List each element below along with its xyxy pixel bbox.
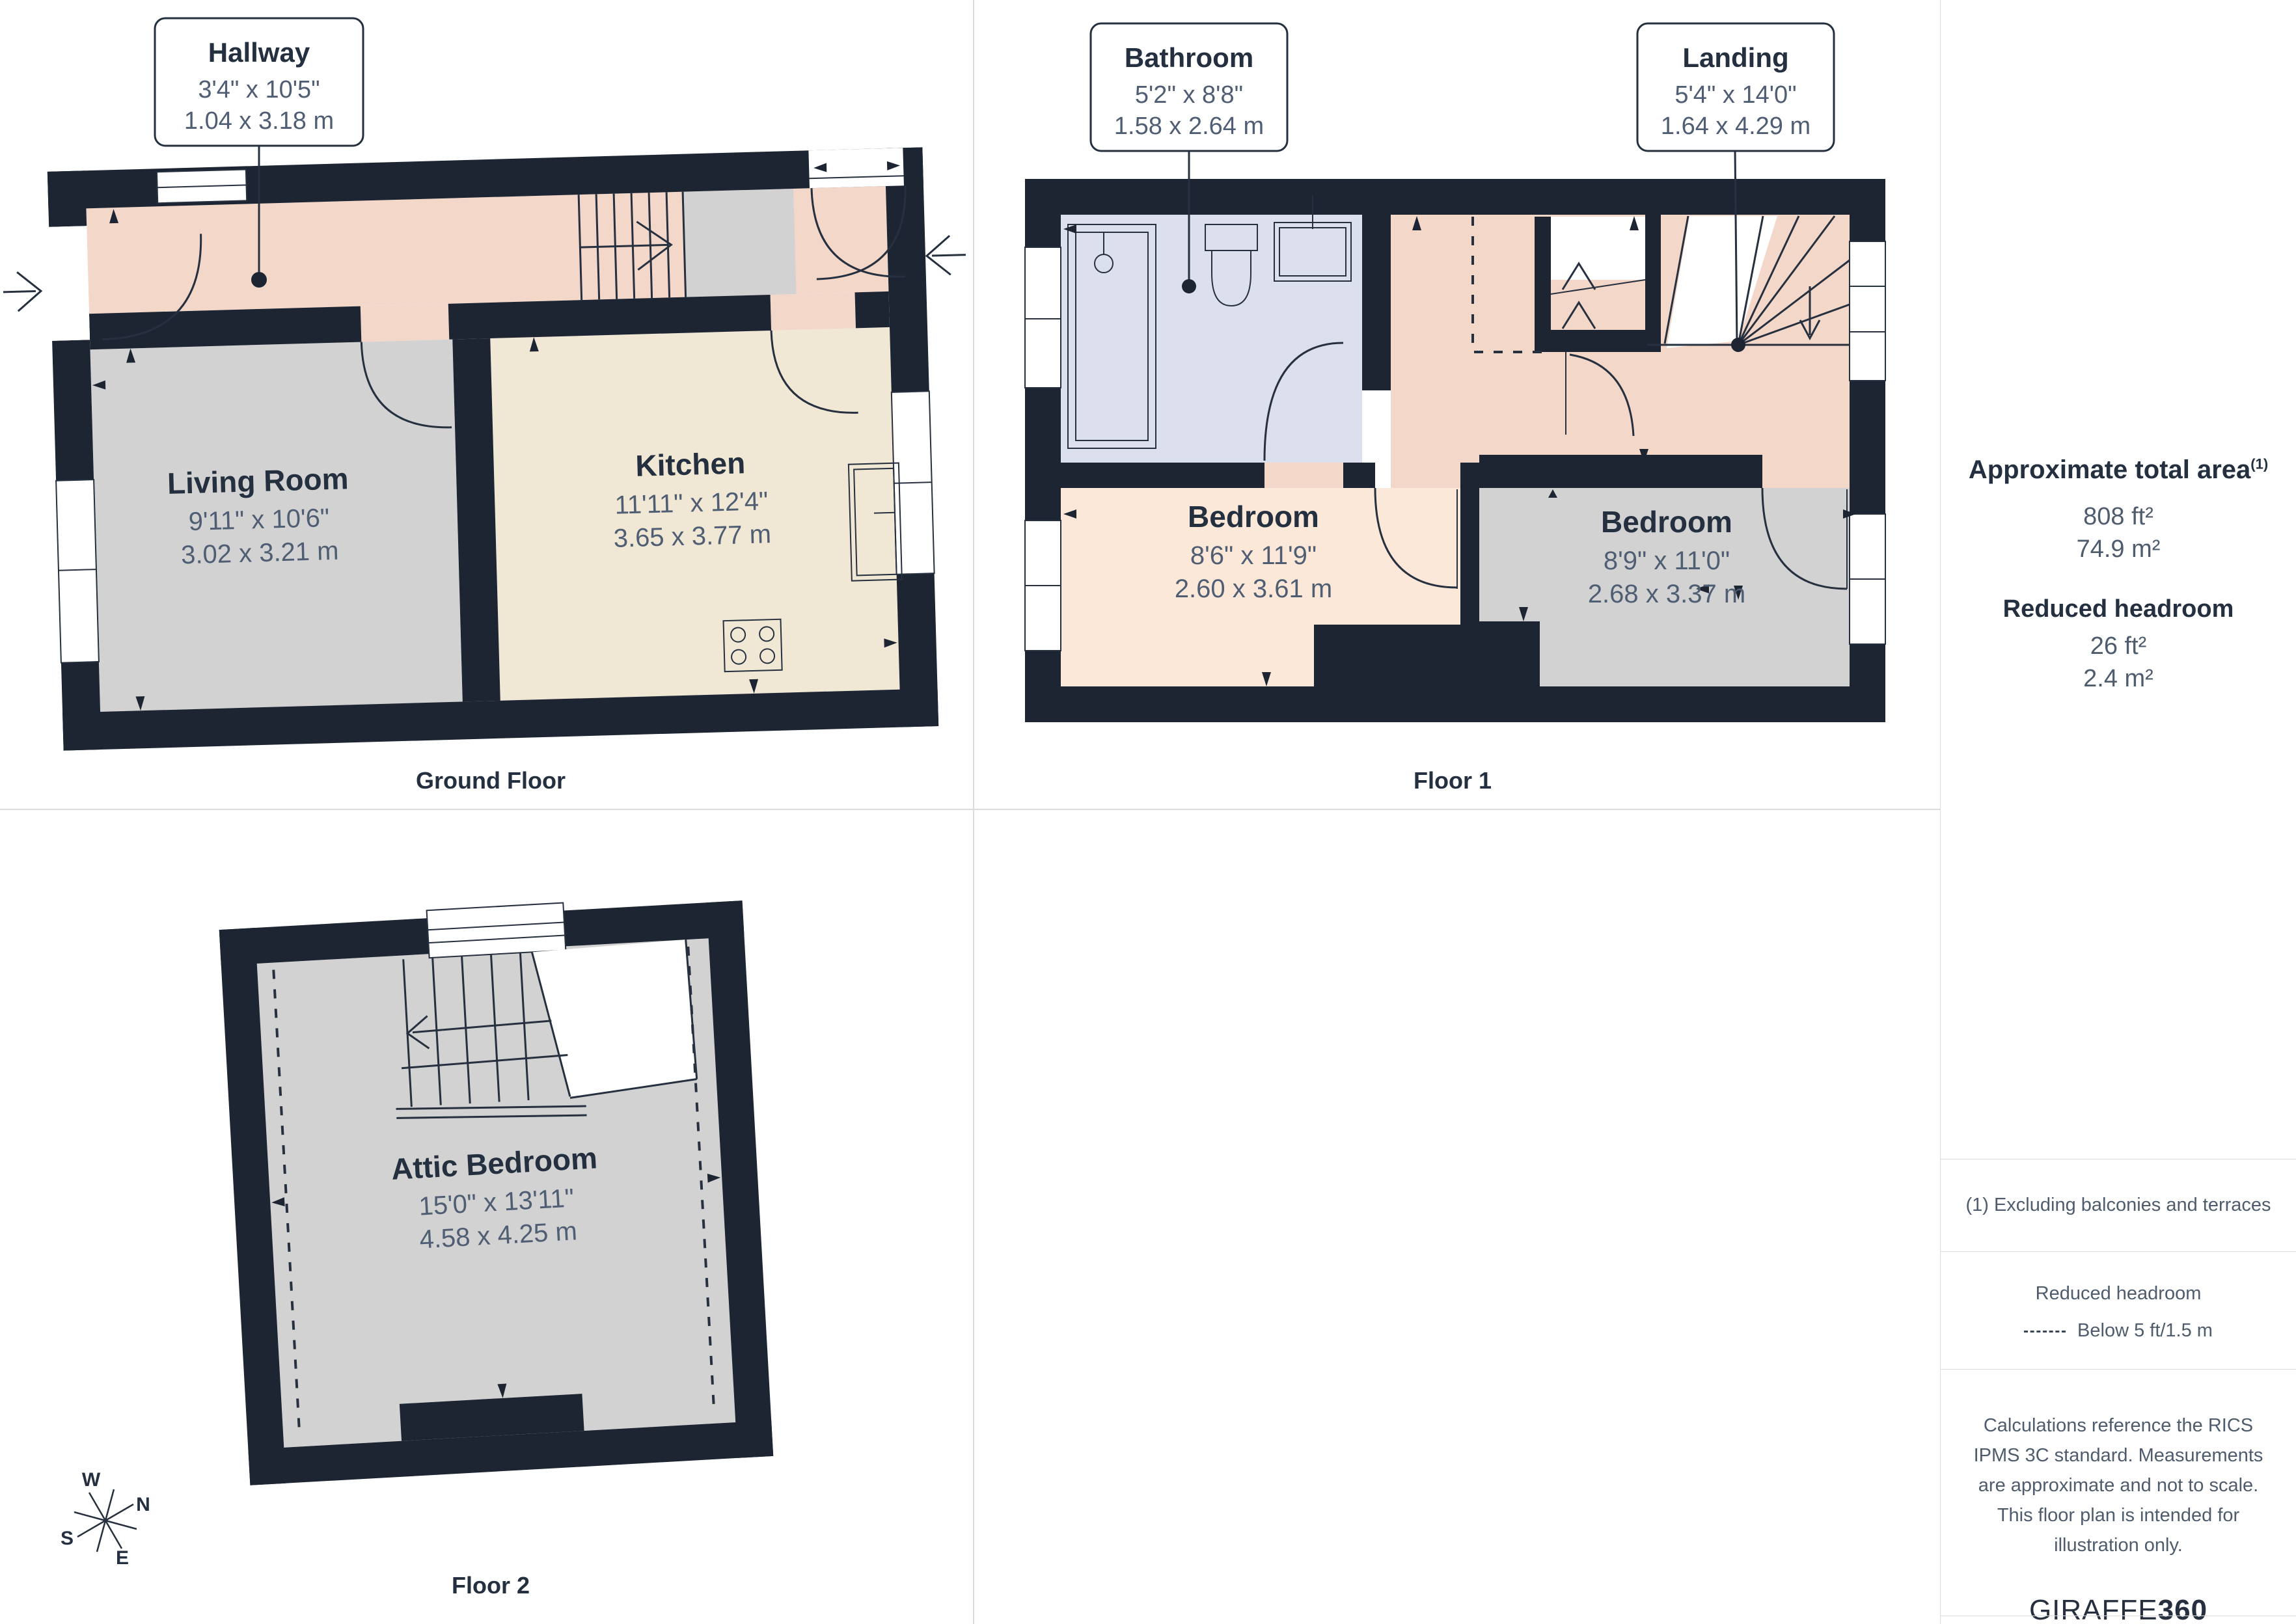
total-area-m: 74.9 m² <box>1941 533 2296 565</box>
living-room-metric: 3.02 x 3.21 m <box>181 537 340 570</box>
sidebar-divider-3 <box>1941 1369 2296 1370</box>
back-bedroom-imperial: 8'9" x 11'0" <box>1604 547 1730 575</box>
giraffe360-logo: GIRAFFE360 <box>1941 1594 2296 1624</box>
floor1-caption: Floor 1 <box>1414 767 1492 794</box>
compass-e: E <box>116 1547 129 1569</box>
kitchen-window <box>892 391 935 575</box>
floor1-plan: Bathroom 5'2" x 8'8" 1.58 x 2.64 m Landi… <box>974 0 1940 809</box>
back-bedroom-metric: 2.68 x 3.37 m <box>1588 580 1745 608</box>
total-area-title: Approximate total area(1) <box>1941 455 2296 485</box>
stair-landing-patch <box>683 189 796 297</box>
disclaimer-block: Calculations reference the RICS IPMS 3C … <box>1941 1411 2296 1624</box>
hallway-imperial: 3'4" x 10'5" <box>198 76 320 103</box>
ground-floor-plan: Living Room 9'11" x 10'6" 3.02 x 3.21 m … <box>0 0 974 809</box>
sidebar-divider-2 <box>1941 1251 2296 1252</box>
front-bedroom-metric: 2.60 x 3.61 m <box>1175 575 1332 603</box>
hallway-metric: 1.04 x 3.18 m <box>184 107 334 135</box>
sidebar-divider-1 <box>1941 1159 2296 1159</box>
landing-label: Landing <box>1682 42 1788 73</box>
kitchen-label: Kitchen <box>635 446 746 483</box>
compass-w: W <box>82 1469 101 1491</box>
bathroom-metric: 1.58 x 2.64 m <box>1114 113 1264 140</box>
reduced-headroom-m: 2.4 m² <box>1941 662 2296 695</box>
attic-window <box>427 903 566 958</box>
dashed-line-swatch <box>2024 1331 2066 1333</box>
floor2-caption: Floor 2 <box>452 1572 530 1599</box>
bathroom-imperial: 5'2" x 8'8" <box>1135 81 1243 109</box>
footnote-block: (1) Excluding balconies and terraces <box>1941 1195 2296 1216</box>
back-bedroom-label: Bedroom <box>1601 505 1732 539</box>
floorplan-sheet: Living Room 9'11" x 10'6" 3.02 x 3.21 m … <box>0 0 2296 1624</box>
front-bedroom-imperial: 8'6" x 11'9" <box>1190 541 1317 570</box>
front-bedroom-window <box>1025 521 1061 651</box>
floor2-plan: Attic Bedroom 15'0" x 13'11" 4.58 x 4.25… <box>0 809 974 1624</box>
compass-s: S <box>61 1528 74 1549</box>
front-bedroom-label: Bedroom <box>1188 500 1319 534</box>
legend-block: Reduced headroom Below 5 ft/1.5 m <box>1941 1283 2296 1342</box>
bathroom-label: Bathroom <box>1125 42 1253 73</box>
landing-window <box>1850 241 1885 381</box>
hallway-label: Hallway <box>208 37 310 68</box>
front-entry-arrow <box>3 271 42 312</box>
legend-title: Reduced headroom <box>1941 1283 2296 1305</box>
landing-metric: 1.64 x 4.29 m <box>1661 113 1811 140</box>
ground-floor-caption: Ground Floor <box>416 767 566 794</box>
total-area-ft: 808 ft² <box>1941 500 2296 533</box>
compass-n: N <box>136 1494 150 1515</box>
living-room-window <box>56 480 99 663</box>
living-room-label: Living Room <box>167 461 349 500</box>
summary-sidebar: Approximate total area(1) 808 ft² 74.9 m… <box>1940 0 2296 1624</box>
total-area-block: Approximate total area(1) 808 ft² 74.9 m… <box>1941 455 2296 695</box>
footnote-text: (1) Excluding balconies and terraces <box>1941 1195 2296 1216</box>
footnote-mark: (1) <box>2250 456 2268 472</box>
back-bedroom-window <box>1850 514 1885 644</box>
disclaimer-text: Calculations reference the RICS IPMS 3C … <box>1971 1411 2265 1560</box>
reduced-headroom-ft: 26 ft² <box>1941 630 2296 662</box>
hallway-top-window <box>157 169 247 203</box>
legend-item: Below 5 ft/1.5 m <box>2077 1320 2213 1341</box>
living-room-imperial: 9'11" x 10'6" <box>188 504 330 536</box>
reduced-headroom-title: Reduced headroom <box>1941 595 2296 623</box>
kitchen-imperial: 11'11" x 12'4" <box>614 487 769 520</box>
kitchen-metric: 3.65 x 3.77 m <box>613 520 772 553</box>
compass-icon: W N S E <box>61 1469 150 1569</box>
bathroom-window <box>1025 247 1061 388</box>
front-door-opening <box>49 226 90 341</box>
landing-imperial: 5'4" x 14'0" <box>1674 81 1796 109</box>
back-entry-arrow <box>926 236 966 276</box>
sidebar-divider-4 <box>1941 1616 2296 1616</box>
